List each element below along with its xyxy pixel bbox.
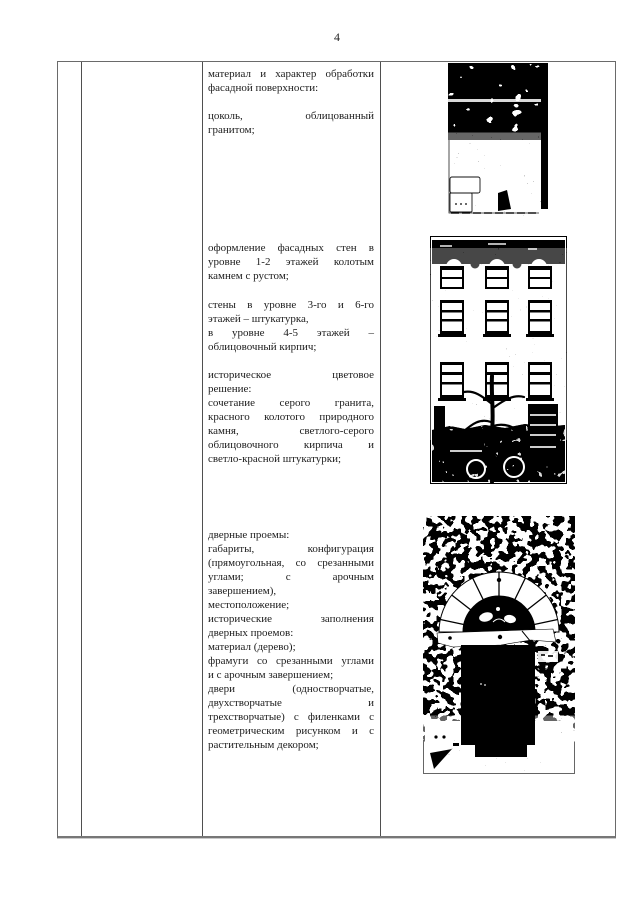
- text-block: цоколь, облицованныйгранитом;: [208, 109, 374, 137]
- text-line: цоколь, облицованный: [208, 109, 374, 123]
- table-cell-photos: [381, 62, 615, 836]
- text-line: двери (одностворчатые,: [208, 682, 374, 696]
- text-line: дверных проемов:: [208, 626, 374, 640]
- text-block: историческое цветовоерешение:сочетание с…: [208, 368, 374, 466]
- text-line: решение:: [208, 382, 374, 396]
- requirements-table: материал и характер обработкифасадной по…: [57, 61, 616, 838]
- text-block: стены в уровне 3-го и 6-гоэтажей – штука…: [208, 298, 374, 354]
- text-line: облицовочный кирпич;: [208, 340, 374, 354]
- granite-plinth-photo: [448, 63, 548, 216]
- text-line: и с арочным завершением;: [208, 668, 374, 682]
- text-line: сочетание серого гранита,: [208, 396, 374, 410]
- text-line: дверные проемы:: [208, 528, 374, 542]
- text-line: местоположение;: [208, 598, 374, 612]
- document-page: 4 материал и характер обработкифасадной …: [0, 0, 640, 905]
- text-line: камнем с рустом;: [208, 269, 374, 283]
- text-line: геометрическим рисунком и с: [208, 724, 374, 738]
- text-line: углами; с арочным: [208, 570, 374, 584]
- text-line: оформление фасадных стен в: [208, 241, 374, 255]
- doorway-photo: [423, 516, 575, 774]
- table-cell-description: материал и характер обработкифасадной по…: [203, 62, 381, 836]
- text-line: фасадной поверхности:: [208, 81, 374, 95]
- table-cell-index: [58, 62, 82, 836]
- text-line: светло-красной штукатурки;: [208, 452, 374, 466]
- text-line: двухстворчатые и: [208, 696, 374, 710]
- text-line: трехстворчатые) с филенками с: [208, 710, 374, 724]
- text-line: в уровне 4-5 этажей –: [208, 326, 374, 340]
- text-line: завершением),: [208, 584, 374, 598]
- text-line: гранитом;: [208, 123, 374, 137]
- text-line: материал (дерево);: [208, 640, 374, 654]
- text-line: габариты, конфигурация: [208, 542, 374, 556]
- text-line: стены в уровне 3-го и 6-го: [208, 298, 374, 312]
- text-line: уровне 1-2 этажей колотым: [208, 255, 374, 269]
- text-line: фрамуги со срезанными углами: [208, 654, 374, 668]
- text-line: растительным декором;: [208, 738, 374, 752]
- text-line: (прямоугольная, со срезанными: [208, 556, 374, 570]
- text-block: дверные проемы:габариты, конфигурация(пр…: [208, 528, 374, 752]
- text-line: камня, светлого-серого: [208, 424, 374, 438]
- text-block: материал и характер обработкифасадной по…: [208, 67, 374, 95]
- text-line: красного колотого природного: [208, 410, 374, 424]
- page-number: 4: [57, 30, 617, 45]
- facade-photo: [430, 236, 567, 484]
- text-block: оформление фасадных стен вуровне 1-2 эта…: [208, 241, 374, 283]
- text-line: историческое цветовое: [208, 368, 374, 382]
- text-line: исторические заполнения: [208, 612, 374, 626]
- table-cell-name: [82, 62, 203, 836]
- text-line: материал и характер обработки: [208, 67, 374, 81]
- text-line: этажей – штукатурка,: [208, 312, 374, 326]
- text-line: облицовочного кирпича и: [208, 438, 374, 452]
